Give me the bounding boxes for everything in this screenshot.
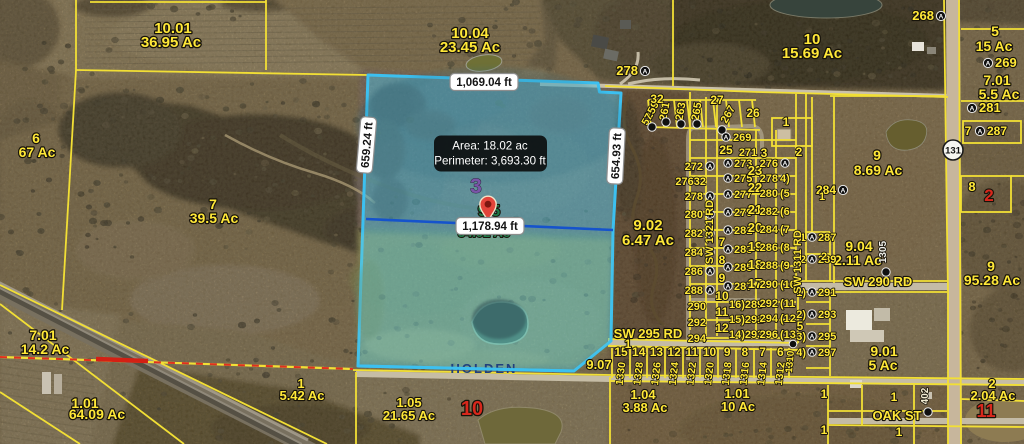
svg-text:SW 1311 RD: SW 1311 RD [792,230,804,294]
svg-text:8: 8 [968,179,975,194]
svg-text:294: 294 [760,313,779,325]
svg-text:280: 280 [685,209,703,221]
svg-text:292: 292 [688,317,706,329]
svg-text:SW 290 RD: SW 290 RD [844,274,913,289]
svg-text:Area: 18.02 ac: Area: 18.02 ac [452,140,528,153]
svg-text:(11: (11 [780,298,795,310]
svg-text:2: 2 [796,145,803,159]
svg-text:25: 25 [719,143,733,157]
svg-text:269: 269 [995,55,1017,70]
svg-text:288: 288 [760,260,778,272]
svg-text:282: 282 [685,228,703,240]
svg-text:402: 402 [920,387,931,404]
svg-text:1: 1 [891,390,898,404]
svg-text:(8: (8 [780,242,790,254]
svg-text:A: A [810,234,815,241]
svg-text:288: 288 [685,285,703,297]
svg-text:1: 1 [821,423,828,437]
svg-text:276: 276 [760,158,778,170]
svg-text:27: 27 [710,93,724,107]
svg-text:67 Ac: 67 Ac [19,144,56,160]
svg-text:278: 278 [616,63,638,78]
svg-text:SW 1321 RD: SW 1321 RD [704,200,716,264]
svg-text:16)289: 16)289 [729,299,763,311]
svg-text:26: 26 [746,106,760,120]
svg-text:A: A [783,160,788,167]
svg-text:A: A [841,187,846,194]
svg-text:295: 295 [818,331,836,343]
svg-text:14: 14 [632,345,646,359]
svg-text:(9: (9 [780,260,790,272]
svg-text:7: 7 [965,124,972,138]
svg-text:296: 296 [760,329,778,341]
svg-text:10: 10 [461,398,483,420]
svg-text:654.93 ft: 654.93 ft [610,133,624,180]
svg-text:297: 297 [818,347,836,359]
svg-text:21.65 Ac: 21.65 Ac [383,408,435,423]
svg-text:278: 278 [760,173,778,185]
svg-text:290: 290 [760,279,778,291]
svg-text:(12: (12 [780,313,796,325]
svg-text:A: A [810,289,815,296]
svg-text:5 Ac: 5 Ac [868,357,897,373]
svg-text:A: A [726,246,731,253]
svg-text:2: 2 [821,251,827,263]
svg-text:5: 5 [797,319,804,333]
svg-text:11: 11 [976,401,995,421]
svg-text:10: 10 [703,345,717,359]
svg-text:15)291: 15)291 [729,314,763,326]
svg-text:294: 294 [688,333,707,345]
svg-text:23.45 Ac: 23.45 Ac [440,39,500,56]
svg-text:269: 269 [733,132,751,144]
svg-text:12: 12 [667,345,681,359]
svg-text:292: 292 [760,298,778,310]
svg-text:36.95 Ac: 36.95 Ac [141,34,201,51]
svg-text:A: A [970,105,975,112]
svg-text:A: A [810,349,815,356]
svg-text:1: 1 [783,115,790,129]
svg-text:5: 5 [991,23,999,39]
svg-text:286: 286 [685,266,703,278]
svg-text:268: 268 [912,8,934,23]
svg-text:3: 3 [470,175,482,198]
svg-text:6: 6 [777,345,784,359]
svg-text:A: A [810,333,815,340]
svg-text:13: 13 [650,345,664,359]
svg-text:14.2 Ac: 14.2 Ac [21,341,70,357]
svg-text:9: 9 [724,345,731,359]
svg-text:131: 131 [945,146,962,157]
svg-text:15.69 Ac: 15.69 Ac [782,45,842,62]
svg-text:A: A [643,68,648,75]
svg-text:290: 290 [688,301,706,313]
svg-text:27632: 27632 [675,176,706,188]
svg-text:(13: (13 [780,329,796,341]
svg-text:(6: (6 [780,206,790,218]
svg-text:287: 287 [818,232,836,244]
svg-text:282: 282 [760,206,778,218]
svg-text:A: A [726,191,731,198]
svg-text:6.47 Ac: 6.47 Ac [622,232,674,249]
svg-text:3.88 Ac: 3.88 Ac [622,400,667,415]
svg-text:A: A [726,160,731,167]
svg-text:Perimeter: 3,693.30 ft: Perimeter: 3,693.30 ft [434,155,546,168]
svg-text:9.07: 9.07 [586,357,611,372]
svg-text:12: 12 [715,321,729,335]
svg-text:11: 11 [685,345,698,359]
svg-text:A: A [726,283,731,290]
svg-text:291: 291 [818,287,836,299]
svg-text:10 Ac: 10 Ac [721,399,755,414]
svg-text:284: 284 [685,247,704,259]
svg-text:(7: (7 [780,224,790,236]
svg-text:293: 293 [818,309,836,321]
svg-text:15 Ac: 15 Ac [976,38,1013,54]
svg-text:A: A [810,256,815,263]
svg-text:14)293: 14)293 [729,329,763,341]
svg-text:1305: 1305 [878,240,889,263]
svg-text:A: A [708,163,713,170]
svg-text:A: A [708,193,713,200]
svg-text:39.5 Ac: 39.5 Ac [190,210,239,226]
svg-text:8: 8 [742,345,749,359]
svg-text:11: 11 [716,305,729,319]
svg-text:A: A [726,227,731,234]
svg-text:280: 280 [760,188,778,200]
svg-text:278: 278 [685,191,703,203]
svg-text:A: A [708,268,713,275]
svg-text:A: A [939,13,944,20]
svg-text:2.11 Ac: 2.11 Ac [834,252,882,268]
svg-text:2: 2 [984,186,993,205]
svg-text:284: 284 [760,224,779,236]
svg-text:A: A [708,287,713,294]
svg-text:A: A [724,134,729,141]
svg-text:287: 287 [987,124,1007,138]
svg-text:5.42 Ac: 5.42 Ac [279,388,324,403]
svg-text:4): 4) [780,173,790,185]
svg-text:8.69 Ac: 8.69 Ac [854,162,903,178]
svg-text:281: 281 [979,100,1001,115]
svg-text:9: 9 [873,147,881,163]
svg-text:1: 1 [625,337,632,351]
svg-text:1,069.04 ft: 1,069.04 ft [456,77,512,89]
svg-text:OAK ST: OAK ST [872,408,921,423]
svg-text:(5: (5 [780,188,790,200]
svg-text:A: A [726,264,731,271]
svg-text:A: A [978,128,983,135]
svg-text:95.28 Ac: 95.28 Ac [964,272,1021,288]
svg-text:4): 4) [796,347,806,359]
svg-text:A: A [810,311,815,318]
svg-text:1,178.94 ft: 1,178.94 ft [462,221,518,233]
svg-text:64.09 Ac: 64.09 Ac [69,406,126,422]
svg-text:A: A [726,209,731,216]
svg-text:1: 1 [821,387,828,401]
svg-text:272: 272 [685,161,703,173]
svg-text:10: 10 [715,289,729,303]
svg-text:1: 1 [819,191,825,203]
svg-text:A: A [986,60,991,67]
svg-text:A: A [726,175,731,182]
svg-text:7: 7 [759,345,766,359]
svg-text:1: 1 [896,425,903,439]
svg-text:286: 286 [760,242,778,254]
